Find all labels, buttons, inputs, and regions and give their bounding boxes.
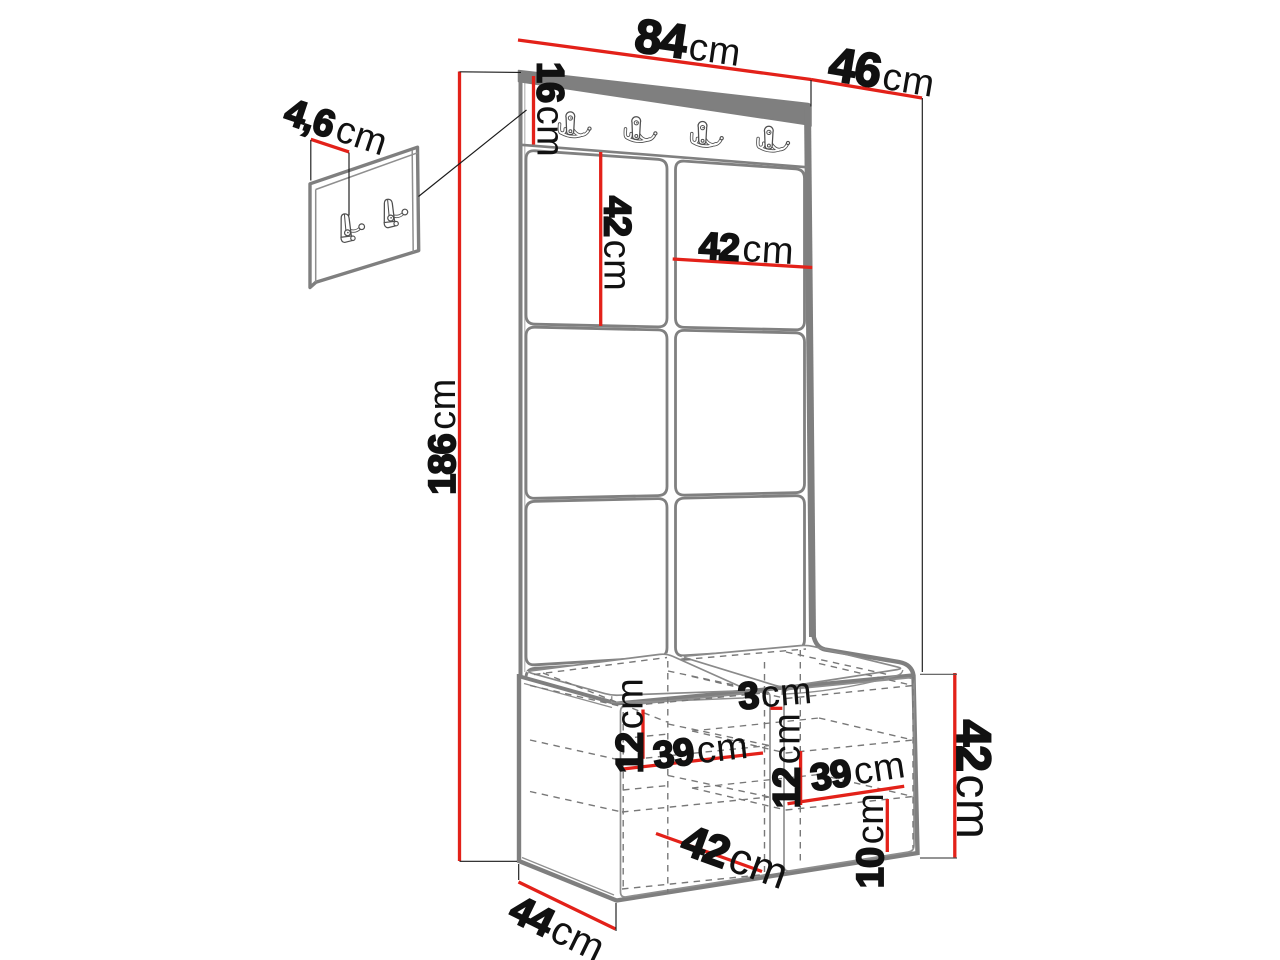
svg-text:cm: cm	[851, 744, 908, 793]
svg-text:cm: cm	[759, 670, 814, 716]
svg-text:42: 42	[946, 720, 999, 771]
svg-text:cm: cm	[767, 713, 809, 765]
svg-text:cm: cm	[946, 774, 999, 839]
svg-text:186: 186	[422, 434, 464, 494]
svg-text:39: 39	[651, 731, 696, 777]
svg-text:cm: cm	[850, 793, 892, 845]
svg-text:cm: cm	[694, 725, 750, 773]
svg-text:cm: cm	[422, 378, 464, 430]
svg-text:cm: cm	[610, 678, 652, 730]
svg-text:cm: cm	[528, 106, 570, 158]
svg-text:cm: cm	[741, 228, 795, 273]
svg-text:12: 12	[767, 768, 809, 808]
svg-text:84: 84	[632, 10, 692, 70]
svg-text:cm: cm	[686, 25, 744, 75]
svg-text:12: 12	[610, 733, 652, 773]
svg-text:16: 16	[528, 62, 570, 102]
svg-text:10: 10	[850, 848, 892, 888]
svg-text:42: 42	[595, 196, 637, 236]
svg-text:cm: cm	[879, 55, 938, 106]
svg-text:46: 46	[825, 38, 884, 99]
svg-text:39: 39	[807, 752, 853, 799]
svg-text:cm: cm	[595, 240, 637, 292]
svg-text:42: 42	[698, 225, 741, 269]
svg-text:3: 3	[736, 675, 760, 719]
